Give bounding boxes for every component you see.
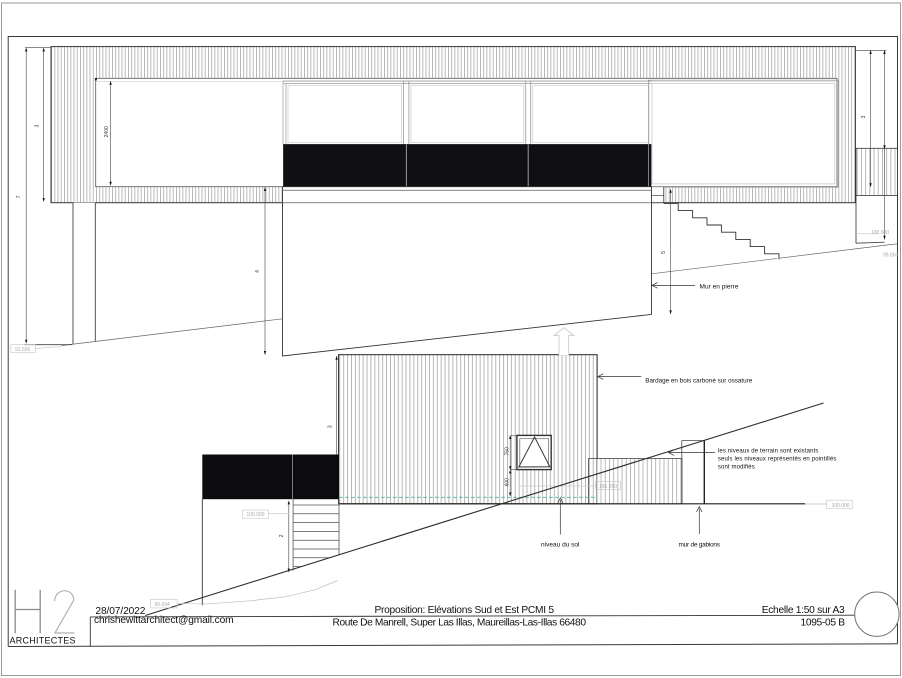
svg-text:Bardage en bois carboné sur os: Bardage en bois carboné sur ossature bbox=[645, 378, 752, 385]
svg-text:750: 750 bbox=[505, 447, 511, 456]
svg-text:3: 3 bbox=[861, 115, 867, 118]
svg-text:chrishewittarchitect@gmail.com: chrishewittarchitect@gmail.com bbox=[94, 615, 234, 626]
svg-text:4: 4 bbox=[255, 270, 261, 273]
svg-text:les niveaux de terrain sont ex: les niveaux de terrain sont existants bbox=[718, 448, 819, 454]
svg-text:101.260: 101.260 bbox=[599, 484, 617, 490]
svg-text:Proposition: Elévations Sud et: Proposition: Elévations Sud et Est PCMI … bbox=[375, 605, 555, 616]
svg-text:3: 3 bbox=[328, 425, 334, 428]
svg-text:Echelle 1:50 sur A3: Echelle 1:50 sur A3 bbox=[762, 605, 845, 616]
svg-text:Route De Manrell, Super Las Il: Route De Manrell, Super Las Illas, Maure… bbox=[333, 618, 587, 629]
svg-text:5: 5 bbox=[661, 251, 667, 254]
svg-text:niveau du sol: niveau du sol bbox=[541, 541, 580, 548]
svg-text:sont modifiés: sont modifiés bbox=[718, 465, 755, 471]
svg-text:2400: 2400 bbox=[104, 126, 110, 137]
svg-text:1095-05 B: 1095-05 B bbox=[801, 618, 846, 629]
svg-text:91.500: 91.500 bbox=[15, 347, 31, 353]
svg-text:7: 7 bbox=[16, 195, 22, 198]
svg-text:Mur en pierre: Mur en pierre bbox=[700, 284, 739, 291]
svg-text:3: 3 bbox=[34, 124, 40, 127]
svg-text:100.000: 100.000 bbox=[871, 230, 889, 236]
svg-text:99.650: 99.650 bbox=[883, 253, 899, 259]
svg-text:ARCHITECTES: ARCHITECTES bbox=[10, 636, 76, 646]
svg-text:95.694: 95.694 bbox=[155, 602, 171, 608]
svg-text:100.000: 100.000 bbox=[247, 512, 265, 518]
svg-text:600: 600 bbox=[505, 478, 511, 487]
svg-text:mur de gabions: mur de gabions bbox=[679, 541, 721, 548]
svg-text:100.000: 100.000 bbox=[832, 503, 850, 509]
svg-text:2: 2 bbox=[279, 534, 285, 537]
svg-text:seuls les niveaux représentés: seuls les niveaux représentés en pointil… bbox=[718, 457, 837, 463]
